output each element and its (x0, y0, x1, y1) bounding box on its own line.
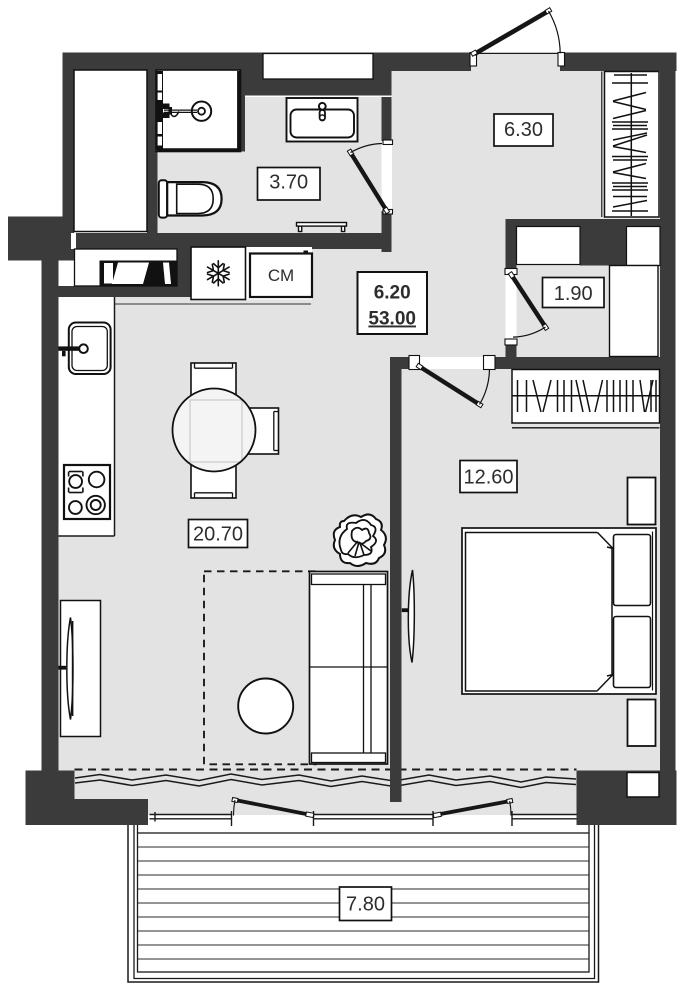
svg-text:СМ: СМ (268, 266, 294, 285)
svg-text:1.90: 1.90 (554, 283, 593, 305)
svg-text:3.70: 3.70 (269, 172, 308, 194)
svg-text:6.30: 6.30 (504, 119, 543, 141)
svg-text:6.20: 6.20 (374, 283, 411, 304)
svg-text:7.80: 7.80 (346, 894, 385, 916)
svg-text:20.70: 20.70 (193, 524, 243, 546)
svg-text:12.60: 12.60 (463, 467, 513, 489)
svg-text:53.00: 53.00 (368, 309, 416, 330)
